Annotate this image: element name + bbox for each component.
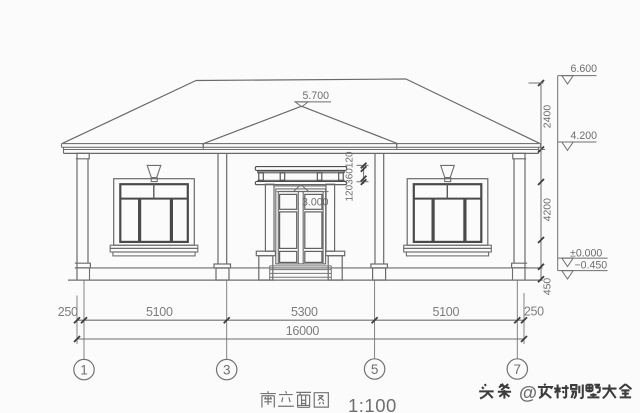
svg-text:1: 1: [80, 363, 88, 378]
svg-text:3: 3: [223, 363, 231, 378]
svg-text:6.600: 6.600: [571, 63, 598, 75]
svg-text:120360120: 120360120: [345, 151, 356, 201]
svg-text:4.200: 4.200: [571, 130, 598, 142]
svg-text:@: @: [519, 382, 537, 403]
svg-text:±0.000: ±0.000: [570, 247, 602, 259]
svg-text:−0.450: −0.450: [575, 260, 608, 272]
svg-text:250: 250: [524, 305, 544, 319]
svg-text:4200: 4200: [542, 198, 554, 222]
svg-text:5: 5: [371, 362, 379, 377]
svg-text:2400: 2400: [541, 105, 553, 129]
svg-text:7: 7: [514, 362, 522, 377]
svg-text:5100: 5100: [146, 305, 173, 319]
svg-text:450: 450: [541, 278, 553, 296]
svg-text:1:100: 1:100: [348, 395, 397, 413]
svg-text:16000: 16000: [286, 324, 320, 338]
svg-text:5300: 5300: [291, 305, 318, 319]
svg-text:5.700: 5.700: [303, 90, 330, 102]
svg-text:250: 250: [58, 305, 78, 319]
svg-text:3.000: 3.000: [302, 196, 329, 208]
svg-text:5100: 5100: [432, 305, 459, 319]
